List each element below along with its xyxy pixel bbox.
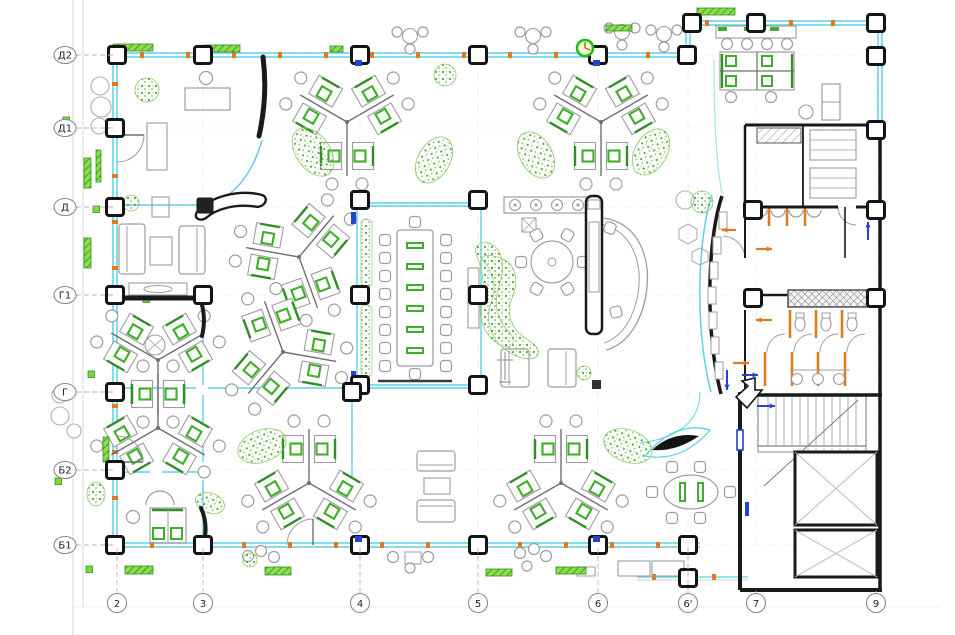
vent-grille xyxy=(86,566,93,573)
monitor xyxy=(543,444,554,455)
vent-grille xyxy=(125,566,153,574)
chair xyxy=(423,552,434,563)
structural-column xyxy=(352,287,369,304)
chair xyxy=(137,360,149,372)
laptop xyxy=(407,306,423,311)
chair xyxy=(410,217,421,228)
toilet-fixture xyxy=(821,317,831,331)
chair xyxy=(380,271,391,282)
mullion-tick xyxy=(508,52,512,58)
wardrobe-shelf xyxy=(757,128,801,143)
plant xyxy=(510,125,563,184)
plant xyxy=(123,195,139,211)
monitor xyxy=(316,277,330,291)
axis-row-label: Д1 xyxy=(58,124,72,135)
mullion-tick xyxy=(380,542,384,548)
plant xyxy=(599,422,657,469)
chair xyxy=(200,72,213,85)
chair xyxy=(541,551,552,562)
chair xyxy=(380,307,391,318)
toilet-fixture xyxy=(795,317,805,331)
mullion-tick xyxy=(370,52,374,58)
mullion-tick xyxy=(324,52,328,58)
structural-column xyxy=(679,47,696,64)
chair xyxy=(601,521,613,533)
chair xyxy=(549,72,561,84)
axis-row-label: Б2 xyxy=(58,466,71,477)
stool xyxy=(197,198,213,213)
structural-column xyxy=(470,377,487,394)
chair xyxy=(257,521,269,533)
chair xyxy=(667,462,678,473)
locker-panel xyxy=(711,337,719,354)
mullion-tick xyxy=(112,82,118,86)
reception-desk xyxy=(185,88,230,110)
chair xyxy=(405,563,415,573)
chair xyxy=(516,257,527,268)
vent-grille xyxy=(486,569,512,576)
sofa xyxy=(119,224,145,274)
chair xyxy=(380,253,391,264)
structural-column xyxy=(868,15,885,32)
monitor xyxy=(291,286,305,300)
sofa xyxy=(417,500,455,522)
vent-grille xyxy=(88,371,95,378)
chair xyxy=(410,369,421,380)
sofa xyxy=(548,349,576,387)
structural-column xyxy=(344,384,361,401)
door-swing xyxy=(838,207,856,225)
vent-grille xyxy=(330,46,343,52)
drain-marker xyxy=(593,536,600,542)
door-swing xyxy=(847,334,865,352)
monitor xyxy=(291,444,302,455)
chair xyxy=(560,228,575,243)
structural-column xyxy=(748,15,765,32)
monitor xyxy=(308,364,321,377)
structural-column xyxy=(868,290,885,307)
chair xyxy=(295,72,307,84)
chair xyxy=(213,440,225,452)
chair xyxy=(441,343,452,354)
drain-marker xyxy=(593,60,600,66)
mullion-tick xyxy=(334,542,338,548)
tree xyxy=(91,77,109,95)
structural-column xyxy=(868,122,885,139)
tree xyxy=(51,407,69,425)
mullion-tick xyxy=(232,52,236,58)
mullion-tick xyxy=(564,542,568,548)
staircase xyxy=(758,396,866,446)
mullion-tick xyxy=(112,496,118,500)
chair xyxy=(529,544,540,555)
chair xyxy=(529,281,544,296)
structural-column xyxy=(195,47,212,64)
floor-plan-canvas: Д2Д1ДГ1ГБ2Б1234566'79 xyxy=(0,0,955,635)
axis-col-label: 2 xyxy=(114,599,120,610)
mullion-tick xyxy=(112,266,118,270)
axis-row-label: Г xyxy=(62,388,68,399)
mullion-tick xyxy=(112,404,118,408)
monitor xyxy=(166,389,177,400)
axis-col-label: 6 xyxy=(595,599,601,610)
monitor xyxy=(312,339,325,352)
chair xyxy=(610,178,622,190)
chair xyxy=(269,552,280,563)
axis-col-label: 3 xyxy=(200,599,206,610)
structural-column xyxy=(470,287,487,304)
chair xyxy=(441,325,452,336)
vent-grille xyxy=(103,437,109,462)
mullion-tick xyxy=(278,52,282,58)
mullion-tick xyxy=(242,542,246,548)
chair xyxy=(441,235,452,246)
tree xyxy=(91,97,111,117)
door-swing xyxy=(117,135,144,162)
laptop xyxy=(407,243,423,248)
chair xyxy=(782,39,793,50)
structural-column xyxy=(470,192,487,209)
structural-column xyxy=(470,47,487,64)
monitor xyxy=(317,444,328,455)
chair xyxy=(603,221,617,235)
chair xyxy=(405,44,415,54)
chair xyxy=(242,293,254,305)
door-swing xyxy=(794,334,812,352)
laptop xyxy=(407,348,423,353)
chair xyxy=(494,495,506,507)
plant xyxy=(691,191,713,213)
vent-grille xyxy=(606,25,632,31)
sink-fixture xyxy=(813,374,824,385)
mullion-tick xyxy=(112,220,118,224)
chair xyxy=(646,25,656,35)
chair xyxy=(270,283,282,295)
plant xyxy=(434,64,456,86)
chair xyxy=(560,281,575,296)
mullion-tick xyxy=(831,20,835,26)
plant xyxy=(408,130,461,189)
chair xyxy=(529,228,544,243)
door-swing xyxy=(723,236,745,258)
mullion-tick xyxy=(554,52,558,58)
chair xyxy=(387,72,399,84)
chair xyxy=(617,40,627,50)
chair xyxy=(570,415,582,427)
chair xyxy=(198,466,210,478)
sink-fixture xyxy=(789,210,803,217)
planter xyxy=(361,305,372,377)
monitor xyxy=(257,258,270,271)
locker-panel xyxy=(715,362,723,379)
chair xyxy=(667,513,678,524)
chair xyxy=(213,336,225,348)
mullion-tick xyxy=(712,574,716,580)
chair xyxy=(541,27,551,37)
chair xyxy=(726,92,737,103)
counter-hatched xyxy=(788,290,868,307)
vent-grille xyxy=(265,567,291,575)
chair xyxy=(441,361,452,372)
chair xyxy=(137,416,149,428)
locker-panel xyxy=(713,237,721,254)
chair xyxy=(321,194,333,206)
chair xyxy=(540,415,552,427)
axis-col-label: 5 xyxy=(475,599,481,610)
chair xyxy=(380,289,391,300)
chair xyxy=(356,178,368,190)
tree xyxy=(91,118,107,134)
sofa xyxy=(417,451,455,471)
mullion-tick xyxy=(646,52,650,58)
mullion-tick xyxy=(426,542,430,548)
chair xyxy=(515,548,526,559)
chair xyxy=(328,304,340,316)
chair xyxy=(392,27,402,37)
sofa xyxy=(179,226,205,274)
drain-marker xyxy=(355,536,362,542)
chair xyxy=(522,561,532,571)
chair xyxy=(580,178,592,190)
chair xyxy=(318,415,330,427)
mullion-tick xyxy=(652,574,656,580)
structural-column xyxy=(745,290,762,307)
coffee-table xyxy=(424,478,450,494)
chair xyxy=(167,416,179,428)
chair xyxy=(242,495,254,507)
conference-table xyxy=(397,230,433,366)
chair xyxy=(418,27,428,37)
chair xyxy=(441,289,452,300)
chair xyxy=(341,342,353,354)
terrace-table xyxy=(526,29,541,44)
chair xyxy=(364,495,376,507)
axis-col-label: 6' xyxy=(683,599,692,610)
vent-grille xyxy=(84,238,91,268)
mullion-tick xyxy=(656,542,660,548)
arrow-head xyxy=(770,403,775,408)
planter xyxy=(361,219,372,287)
chair xyxy=(402,98,414,110)
plant xyxy=(192,488,227,517)
chair xyxy=(762,39,773,50)
door-swing xyxy=(767,334,785,352)
vent-grille xyxy=(55,478,62,485)
vent-grille xyxy=(96,150,101,182)
monitor xyxy=(609,151,620,162)
chair xyxy=(288,415,300,427)
chair xyxy=(300,314,312,326)
chair xyxy=(380,343,391,354)
mullion-tick xyxy=(462,52,466,58)
toilet-fixture xyxy=(847,317,857,331)
arrow-head xyxy=(767,246,772,251)
chair xyxy=(656,98,668,110)
laptop xyxy=(407,327,423,332)
chair xyxy=(229,255,241,267)
axis-col-label: 9 xyxy=(873,599,879,610)
chair xyxy=(280,98,292,110)
coffee-table xyxy=(150,237,172,265)
monitor xyxy=(569,444,580,455)
arrow-head xyxy=(865,222,870,227)
plant xyxy=(135,78,159,102)
chair xyxy=(226,384,238,396)
axis-col-label: 4 xyxy=(357,599,363,610)
terrace-table xyxy=(403,29,418,44)
vent-grille xyxy=(84,158,91,188)
plant xyxy=(243,553,257,567)
chair xyxy=(695,513,706,524)
plant xyxy=(577,366,591,380)
chair xyxy=(742,39,753,50)
locker-panel xyxy=(708,287,716,304)
chair xyxy=(616,495,628,507)
chair xyxy=(235,225,247,237)
structural-column xyxy=(745,202,762,219)
chair xyxy=(91,336,103,348)
monitor xyxy=(140,389,151,400)
structural-column xyxy=(684,15,701,32)
plant xyxy=(87,482,105,506)
laptop xyxy=(407,285,423,290)
mullion-tick xyxy=(789,20,793,26)
chair xyxy=(441,307,452,318)
laptop xyxy=(407,264,423,269)
vent-grille xyxy=(697,8,735,15)
sink-fixture xyxy=(771,210,785,217)
mullion-tick xyxy=(140,52,144,58)
chair xyxy=(91,440,103,452)
chair xyxy=(441,253,452,264)
locker-panel xyxy=(709,312,717,329)
chair xyxy=(725,487,736,498)
chair xyxy=(249,403,261,415)
structural-column xyxy=(868,202,885,219)
chair xyxy=(515,27,525,37)
monitor xyxy=(355,151,366,162)
structural-column xyxy=(352,192,369,209)
chair xyxy=(441,271,452,282)
sink-fixture xyxy=(834,374,845,385)
chair xyxy=(509,521,521,533)
chair xyxy=(609,305,622,318)
arrow-head xyxy=(724,385,729,390)
locker-panel xyxy=(710,262,718,279)
chair xyxy=(695,462,706,473)
meeting-table xyxy=(664,475,718,509)
chair xyxy=(349,521,361,533)
arrow-head xyxy=(753,372,758,377)
arrow-head xyxy=(756,317,761,322)
mullion-tick xyxy=(288,542,292,548)
axis-col-label: 7 xyxy=(753,599,759,610)
floor-plan-drawing: Д2Д1ДГ1ГБ2Б1234566'79 xyxy=(0,0,955,635)
chair xyxy=(380,361,391,372)
chair xyxy=(766,92,777,103)
chair xyxy=(127,511,140,524)
chair xyxy=(326,178,338,190)
locker-panel xyxy=(719,212,727,229)
axis-row-label: Д2 xyxy=(58,51,72,62)
sink-fixture xyxy=(792,374,803,385)
monitor xyxy=(252,317,266,331)
axis-row-label: Б1 xyxy=(58,541,71,552)
chair xyxy=(380,325,391,336)
terrace-table xyxy=(657,27,672,42)
mullion-tick xyxy=(416,52,420,58)
monitor xyxy=(583,151,594,162)
chair xyxy=(380,235,391,246)
sink-fixture xyxy=(807,210,821,217)
structural-column xyxy=(868,48,885,65)
kitchen-bar xyxy=(586,196,602,334)
chair xyxy=(106,310,118,322)
chair xyxy=(167,360,179,372)
mullion-tick xyxy=(186,52,190,58)
vent-grille xyxy=(556,567,586,574)
mullion-tick xyxy=(705,20,709,26)
mullion-tick xyxy=(112,174,118,178)
door-swing xyxy=(820,334,838,352)
chair xyxy=(388,552,399,563)
chair xyxy=(534,98,546,110)
chair xyxy=(659,42,669,52)
monitor xyxy=(261,232,274,245)
mullion-tick xyxy=(610,542,614,548)
chair xyxy=(256,546,267,557)
monitor xyxy=(277,309,291,323)
bench xyxy=(147,123,167,170)
structural-column xyxy=(195,287,212,304)
chair xyxy=(672,25,682,35)
chair xyxy=(647,487,658,498)
axis-row-label: Д xyxy=(61,203,69,214)
tree xyxy=(67,424,81,438)
chair xyxy=(641,72,653,84)
chair xyxy=(335,372,347,384)
arrow-head xyxy=(744,360,749,365)
chair xyxy=(722,39,733,50)
chair xyxy=(528,44,538,54)
axis-row-label: Г1 xyxy=(59,291,71,302)
drain-marker xyxy=(355,60,362,66)
